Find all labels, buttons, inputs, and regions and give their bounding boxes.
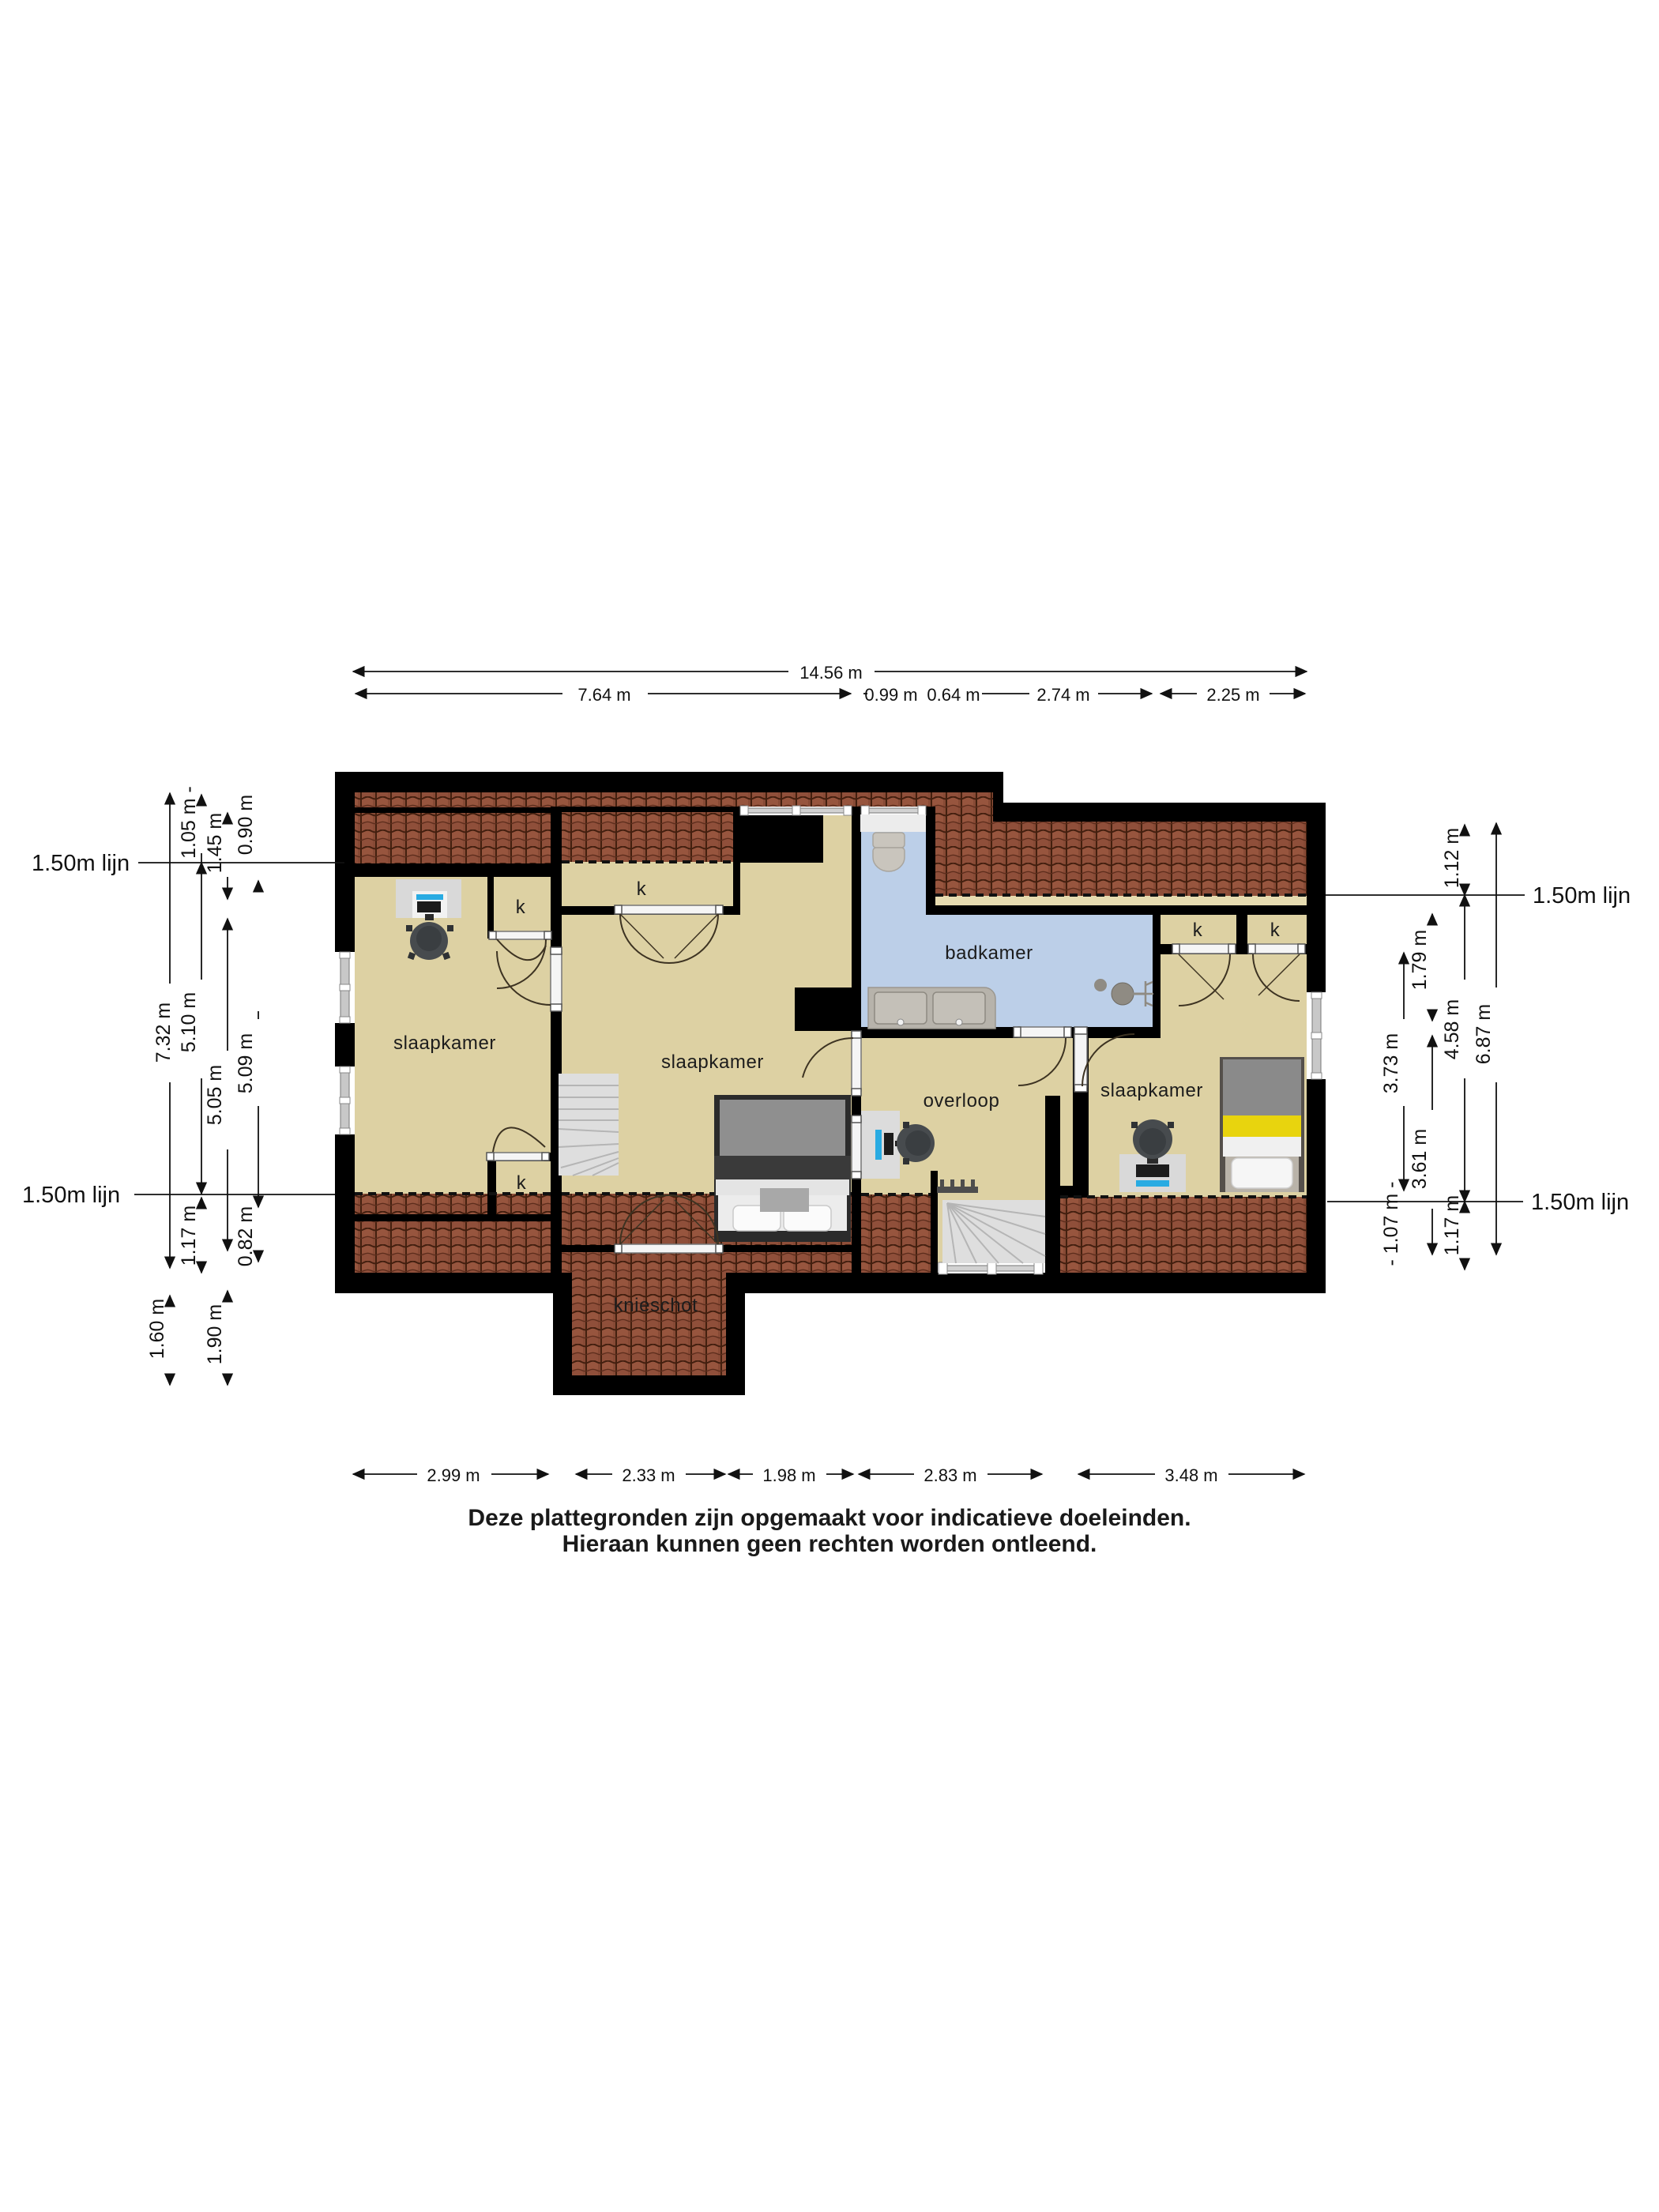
svg-text:2.33 m: 2.33 m — [622, 1465, 675, 1485]
svg-text:1.90 m: 1.90 m — [204, 1304, 226, 1364]
svg-text:5.10 m: 5.10 m — [178, 992, 200, 1052]
svg-text:5.09 m: 5.09 m — [235, 1033, 257, 1093]
svg-text:slaapkamer: slaapkamer — [393, 1033, 496, 1054]
svg-text:3.48 m: 3.48 m — [1164, 1465, 1217, 1485]
svg-text:2.99 m: 2.99 m — [427, 1465, 480, 1485]
svg-text:knieschot: knieschot — [614, 1295, 698, 1316]
svg-text:1.50m lijn: 1.50m lijn — [1531, 1190, 1629, 1215]
svg-text:4.58 m: 4.58 m — [1441, 999, 1463, 1059]
svg-text:3.61 m: 3.61 m — [1409, 1129, 1431, 1189]
svg-text:1.98 m: 1.98 m — [762, 1465, 815, 1485]
svg-text:1.17 m: 1.17 m — [178, 1206, 200, 1266]
svg-text:0.82 m: 0.82 m — [235, 1206, 257, 1266]
svg-text:1.50m lijn: 1.50m lijn — [1533, 883, 1631, 908]
svg-text:2.83 m: 2.83 m — [924, 1465, 976, 1485]
svg-text:1.12 m: 1.12 m — [1441, 828, 1463, 888]
svg-text:7.64 m: 7.64 m — [577, 685, 630, 705]
svg-text:1.60 m: 1.60 m — [146, 1299, 168, 1359]
svg-text:1.17 m: 1.17 m — [1441, 1195, 1463, 1255]
svg-text:Deze plattegronden zijn opgema: Deze plattegronden zijn opgemaakt voor i… — [468, 1505, 1191, 1531]
svg-text:5.05 m: 5.05 m — [204, 1065, 226, 1125]
svg-text:1.79 m: 1.79 m — [1409, 930, 1431, 990]
svg-text:7.32 m: 7.32 m — [152, 1003, 175, 1063]
svg-text:2.74 m: 2.74 m — [1036, 685, 1089, 705]
svg-text:k: k — [1270, 920, 1281, 941]
svg-text:k: k — [1193, 920, 1203, 941]
svg-text:- 1.07 m -: - 1.07 m - — [1380, 1182, 1402, 1266]
svg-text:k: k — [517, 1172, 527, 1194]
svg-text:1.50m lijn: 1.50m lijn — [32, 851, 130, 876]
svg-text:1.50m lijn: 1.50m lijn — [22, 1183, 120, 1208]
svg-text:1.45 m: 1.45 m — [204, 813, 226, 873]
svg-text:6.87 m: 6.87 m — [1473, 1004, 1495, 1064]
svg-text:0.99 m: 0.99 m — [864, 685, 917, 705]
svg-text:overloop: overloop — [924, 1090, 1000, 1112]
svg-text:0.64 m: 0.64 m — [927, 685, 980, 705]
svg-text:slaapkamer: slaapkamer — [661, 1051, 764, 1073]
svg-text:1.05 m -: 1.05 m - — [178, 786, 200, 859]
svg-text:badkamer: badkamer — [945, 942, 1033, 964]
svg-text:slaapkamer: slaapkamer — [1100, 1080, 1203, 1101]
svg-text:k: k — [637, 878, 647, 900]
svg-text:14.56 m: 14.56 m — [799, 663, 863, 683]
svg-text:3.73 m: 3.73 m — [1380, 1033, 1402, 1093]
svg-text:2.25 m: 2.25 m — [1206, 685, 1259, 705]
svg-text:k: k — [516, 897, 526, 918]
svg-text:0.90 m: 0.90 m — [235, 795, 257, 855]
svg-text:Hieraan kunnen geen rechten wo: Hieraan kunnen geen rechten worden ontle… — [562, 1531, 1097, 1557]
